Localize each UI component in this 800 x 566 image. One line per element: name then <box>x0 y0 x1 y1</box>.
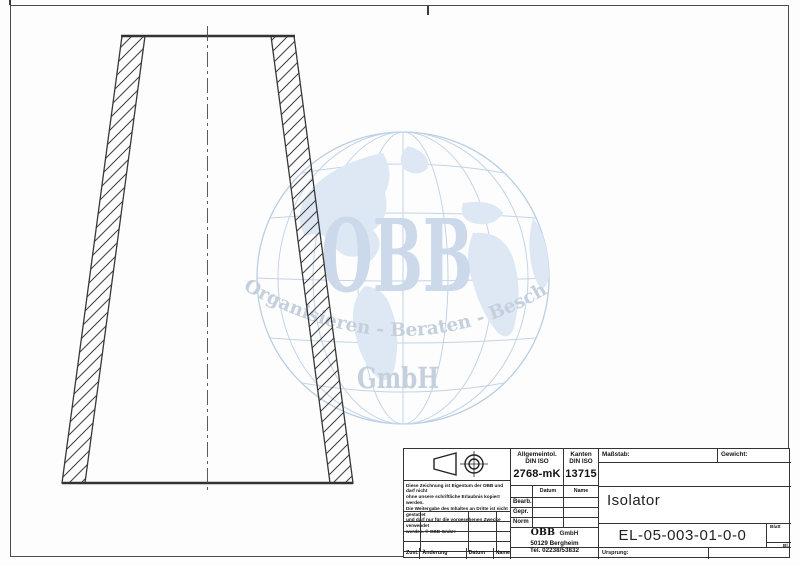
tolerance-value: 2768-mK <box>511 468 563 480</box>
projection-symbol-cell <box>404 449 511 481</box>
sheet-label: Blatt <box>767 524 791 542</box>
revision-row <box>404 532 510 542</box>
tolerance-label-2: DIN ISO <box>511 458 563 465</box>
part-name: Isolator <box>599 487 791 509</box>
revision-name-label: Name <box>494 548 510 559</box>
approval-date-header: Datum <box>533 486 564 497</box>
revision-row <box>404 522 510 532</box>
edges-label-1: Kanten <box>564 451 598 458</box>
revision-header-row: Zust. Änderung Datum Name <box>404 548 511 559</box>
disclaimer-line: ohne unsere schriftliche Erlaubnis kopie… <box>406 494 509 506</box>
approval-name-header: Name <box>564 486 598 497</box>
drawing-number: EL-05-003-01-0-0 <box>599 524 766 547</box>
first-angle-projection-icon <box>404 449 509 479</box>
scale-value-row <box>599 463 791 487</box>
company-suffix: GmbH <box>559 530 578 537</box>
disclaimer-cell: Diese Zeichnung ist Eigentum der OBB und… <box>404 481 511 512</box>
origin-label: Ursprung: <box>599 548 709 559</box>
company-cell: OBB GmbH 50129 Bergheim Tel. 02238/53832 <box>511 528 599 548</box>
revision-date-label: Datum <box>467 548 494 559</box>
drawing-number-cell: EL-05-003-01-0-0 <box>599 524 767 548</box>
edges-cell: Kanten DIN ISO 13715 <box>564 449 599 486</box>
sheet-cell: Blatt Bl. <box>767 524 791 548</box>
revision-row <box>404 512 510 522</box>
company-name: OBB <box>531 527 555 538</box>
revision-table <box>404 512 511 548</box>
bearb-label: Bearb. <box>511 498 533 507</box>
scale-label: Maßstab: <box>599 449 717 458</box>
disclaimer-line: Diese Zeichnung ist Eigentum der OBB und… <box>406 483 509 495</box>
part-name-cell: Isolator <box>599 487 791 524</box>
frame-center-tick <box>427 6 429 15</box>
general-tolerance-cell: Allgemeintol. DIN ISO 2768-mK <box>511 449 564 486</box>
title-block: Diese Zeichnung ist Eigentum der OBB und… <box>403 448 790 558</box>
origin-row: Ursprung: <box>599 548 791 559</box>
approval-row-bearb: Bearb. <box>511 498 599 508</box>
drawing-sheet: OBB Organisieren - Beraten - Beschaffen … <box>0 0 800 566</box>
company-address: 50129 Bergheim <box>530 540 578 547</box>
revision-change-label: Änderung <box>420 548 466 559</box>
approval-header-row: Datum Name <box>511 486 599 498</box>
approval-row-gepr: Gepr. <box>511 508 599 518</box>
weight-cell: Gewicht: <box>718 449 791 463</box>
weight-label: Gewicht: <box>718 449 791 458</box>
revision-zust-label: Zust. <box>404 548 420 559</box>
gepr-label: Gepr. <box>511 508 533 517</box>
scale-cell: Maßstab: <box>599 449 718 463</box>
frame-corner-tick <box>9 0 11 5</box>
edges-label-2: DIN ISO <box>564 458 598 465</box>
tolerance-label-1: Allgemeintol. <box>511 451 563 458</box>
bottom-middle-cell <box>511 548 599 559</box>
edges-value: 13715 <box>564 468 598 480</box>
